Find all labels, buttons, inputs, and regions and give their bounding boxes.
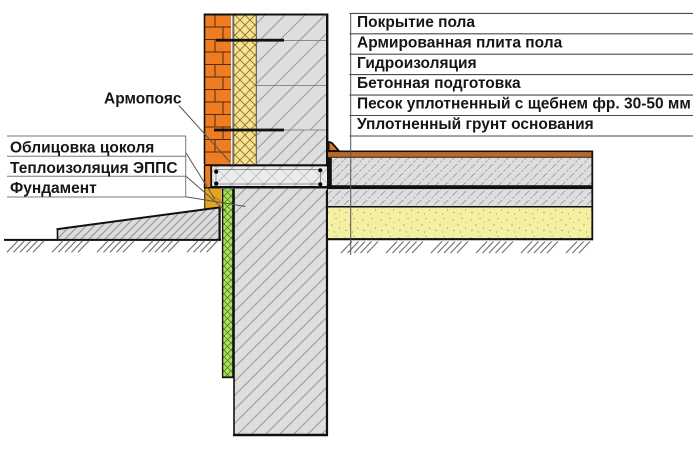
svg-text:Армопояс: Армопояс [104, 91, 182, 108]
svg-text:Покрытие пола: Покрытие пола [357, 14, 475, 31]
svg-text:Песок уплотненный с щебнем фр.: Песок уплотненный с щебнем фр. 30-50 мм [357, 96, 691, 113]
svg-text:Фундамент: Фундамент [10, 180, 97, 197]
svg-text:Бетонная подготовка: Бетонная подготовка [357, 75, 521, 92]
svg-text:Теплоизоляция ЭППС: Теплоизоляция ЭППС [10, 160, 178, 177]
svg-text:Уплотненный грунт основания: Уплотненный грунт основания [357, 116, 594, 133]
svg-text:Облицовка цоколя: Облицовка цоколя [10, 140, 154, 157]
svg-text:Армированная плита пола: Армированная плита пола [357, 34, 563, 51]
svg-text:Гидроизоляция: Гидроизоляция [357, 55, 477, 72]
